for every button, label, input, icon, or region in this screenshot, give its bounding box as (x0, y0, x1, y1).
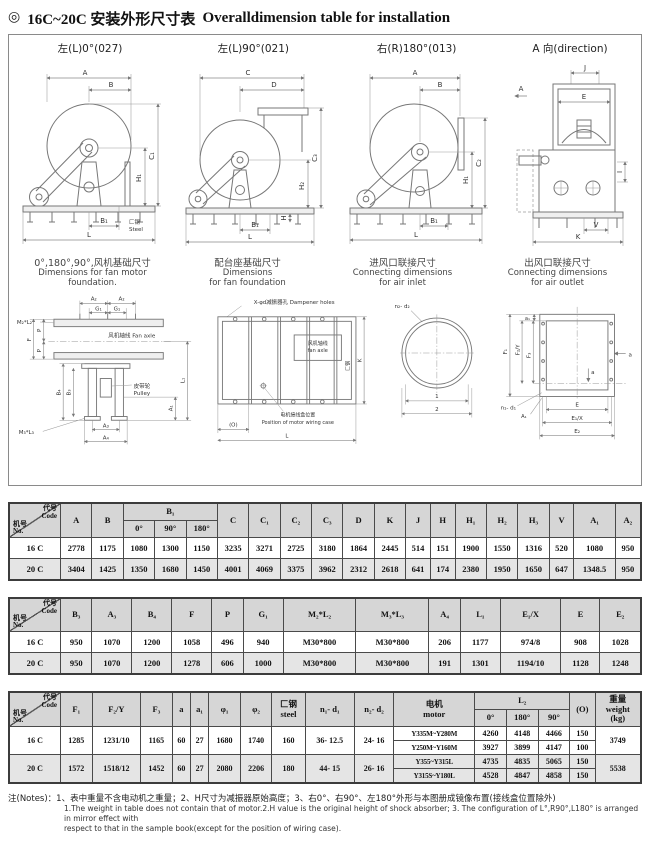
col-header: 180° (506, 710, 538, 727)
dim-label: H (280, 215, 288, 220)
table-cell: 1650 (518, 559, 549, 581)
dim-label: D (272, 81, 277, 89)
table-cell: 150 (570, 769, 595, 784)
col-header: A₃ (92, 598, 132, 632)
col-header: G₁ (243, 598, 283, 632)
table-cell: 5065 (538, 755, 570, 769)
fan-drawing-90deg: C D C₃ (178, 56, 328, 251)
col-header: J (406, 503, 431, 538)
row-header: 20 C (9, 653, 61, 675)
table-cell: 3962 (312, 559, 343, 581)
dim-label: F₂/Y (515, 343, 521, 354)
table-row: 16 C277811751080130011503235327127253180… (9, 538, 641, 559)
col-header: 180° (186, 521, 217, 538)
table-cell: 2445 (374, 538, 405, 559)
table-cell: Y355~Y315L (394, 755, 475, 769)
table-cell: 1028 (600, 632, 641, 653)
air-inlet-drawing: n₂- d₂ 1 2 (378, 295, 493, 435)
table-cell: 60 (172, 755, 190, 784)
table-cell: M30*800 (283, 653, 356, 675)
col-header: 90° (155, 521, 186, 538)
dim-label: L (87, 231, 91, 239)
pulley-label-zh: 皮带轮 (134, 381, 151, 389)
fan-drawing-0deg: A B C₁ (15, 56, 165, 251)
dim-label: F (27, 338, 33, 341)
bolt-holes-label: n₁- d₁ (501, 405, 516, 411)
table-cell: 1452 (141, 755, 173, 784)
caption-fan-motor-foundation: 0°,180°,90°,风机基础尺寸 Dimensions for fan mo… (15, 255, 170, 289)
col-header: L₁ (460, 598, 500, 632)
steel-label: 匚钢 (345, 360, 352, 370)
dim-label: A (83, 69, 88, 77)
col-header: H₃ (518, 503, 549, 538)
col-header: D (343, 503, 374, 538)
table-cell: 4466 (538, 727, 570, 741)
col-header: P (212, 598, 243, 632)
drawings-panel: 左(L)0°(027) A B (8, 34, 642, 486)
col-header: A₁ (574, 503, 615, 538)
table-cell: 1200 (132, 632, 172, 653)
caption-zh: 配台座基础尺寸 (170, 255, 325, 269)
dim-label: B (109, 81, 114, 89)
view-arrow-label: A (519, 85, 524, 93)
table-cell: 2380 (455, 559, 486, 581)
table-cell: 1058 (172, 632, 212, 653)
dim-label: J (583, 64, 586, 72)
axle-label-en: fan axle (308, 348, 328, 354)
dim-label: C₁ (148, 152, 156, 160)
notes: 注(Notes)：1、表中重量不含电动机之重量；2、H尺寸为减振器原始高度；3、… (8, 792, 642, 833)
col-header: C₁ (249, 503, 280, 538)
table-cell: 2312 (343, 559, 374, 581)
table-cell: 1316 (518, 538, 549, 559)
table-cell: 1680 (155, 559, 186, 581)
table-cell: 908 (561, 632, 600, 653)
dimension-table-flange-motor: 代号 Code机号 No.F₁F₂/YF₃aa₁φ₁φ₂匚钢 steeln₁- … (8, 691, 642, 784)
dim-label: E (582, 93, 586, 101)
table-cell: 150 (570, 755, 595, 769)
dim-label: A₄ (103, 435, 110, 441)
caption-en: Dimensions for fan motor foundation. (15, 269, 170, 289)
table-cell: 180 (272, 755, 305, 784)
dim-label: B₁ (100, 217, 108, 225)
corner-code-label: 代号 Code (41, 694, 57, 709)
table-cell: 1175 (92, 538, 123, 559)
caption-zh: 出风口联接尺寸 (480, 255, 635, 269)
caption-air-outlet: 出风口联接尺寸 Connecting dimensions for air ou… (480, 255, 635, 289)
col-header: F₃ (141, 692, 173, 727)
dim-label: H₁ (135, 174, 143, 182)
col-header: (O) (570, 692, 595, 727)
pulley-label-en: Pulley (134, 391, 151, 397)
table-cell: Y335M~Y280M (394, 727, 475, 741)
table-cell: 3749 (595, 727, 641, 755)
col-header: F₂/Y (92, 692, 141, 727)
table-cell: 1950 (486, 559, 517, 581)
dim-label: C₂ (475, 159, 483, 167)
table-cell: 2206 (240, 755, 272, 784)
dim-label: K (576, 233, 581, 241)
col-header: E (561, 598, 600, 632)
table-cell: Y315S~Y180L (394, 769, 475, 784)
document-page: ◎ 16C~20C 安装外形尺寸表 Overalldimension table… (0, 0, 650, 854)
table-cell: 4835 (506, 755, 538, 769)
dim-label: A₁ (169, 405, 175, 411)
table-cell: 1231/10 (92, 727, 141, 755)
table-cell: 950 (61, 632, 92, 653)
table-cell: 100 (570, 741, 595, 755)
dim-label: B₄ (56, 388, 62, 395)
table-cell: 1348.5 (574, 559, 615, 581)
table-cell: 4735 (475, 755, 507, 769)
table-cell: 1900 (455, 538, 486, 559)
table-cell: 1070 (92, 632, 132, 653)
caption-row: 0°,180°,90°,风机基础尺寸 Dimensions for fan mo… (15, 255, 635, 289)
table-cell: 950 (615, 559, 641, 581)
table-cell: 1740 (240, 727, 272, 755)
table-cell: 606 (212, 653, 243, 675)
foundation-side-drawing: A₂ A₂ G₁ G₁ M₂*L₂ 风机轴线 Fan axle F P P (15, 295, 205, 463)
row-header: 20 C (9, 755, 61, 784)
corner-no-label: 机号 No. (13, 710, 27, 725)
notes-en-line2: respect to that in the sample book(excep… (64, 824, 642, 834)
page-title-en: Overalldimension table for installation (202, 10, 450, 27)
dim-label: B₁ (252, 221, 260, 229)
table-cell: 44- 15 (305, 755, 354, 784)
figure-title: A 向(direction) (505, 41, 635, 56)
table-cell: 514 (406, 538, 431, 559)
dim-label: 1 (435, 394, 439, 400)
table-cell: 647 (549, 559, 574, 581)
dim-label: V (594, 221, 599, 229)
table-cell: 1350 (123, 559, 154, 581)
dim-label: P (37, 348, 43, 352)
table-cell: 950 (61, 653, 92, 675)
table-cell: M30*800 (356, 653, 429, 675)
table-cell: 27 (190, 755, 208, 784)
col-header: E₁/X (500, 598, 561, 632)
row-header: 16 C (9, 632, 61, 653)
table-cell: 1572 (61, 755, 93, 784)
fan-views-row: 左(L)0°(027) A B (15, 39, 635, 251)
caption-en: Dimensions for fan foundation (170, 269, 325, 289)
col-header: B₃ (61, 598, 92, 632)
dim-label: F₃ (526, 352, 532, 357)
dampener-holes-label: X-φd减振器孔 Dampener holes (254, 298, 335, 306)
col-header: n₁- d₁ (305, 692, 354, 727)
dim-label: K (358, 358, 364, 362)
table-cell: 641 (406, 559, 431, 581)
row-header: 20 C (9, 559, 61, 581)
dim-label: L (248, 233, 252, 241)
table-cell: 4847 (506, 769, 538, 784)
col-header: 匚钢 steel (272, 692, 305, 727)
fan-view-right-180deg: 右(R)180°(013) A B (342, 39, 492, 251)
table-cell: 1550 (486, 538, 517, 559)
table-cell: 1080 (123, 538, 154, 559)
dim-label: B₃ (67, 389, 73, 395)
table-cell: 1864 (343, 538, 374, 559)
notes-en: 1.The weight in table does not contain t… (64, 804, 642, 833)
col-header: n₂- d₂ (354, 692, 393, 727)
dim-label: A₁ (521, 413, 527, 419)
table-cell: 1680 (209, 727, 241, 755)
col-header: B₁ (123, 503, 217, 521)
col-header: L₂ (475, 692, 570, 710)
dim-label: H₂ (298, 182, 306, 190)
dimension-table-foundation: 代号 Code机号 No.B₃A₃B₄FPG₁M₂*L₂M₃*L₃A₄L₁E₁/… (8, 597, 642, 675)
table-cell: 4147 (538, 741, 570, 755)
col-header: C (217, 503, 248, 538)
page-title-zh: 16C~20C 安装外形尺寸表 (27, 8, 195, 29)
dim-label: (O) (229, 422, 238, 428)
dim-label: G₁ (114, 306, 121, 312)
title-bullet-icon: ◎ (8, 11, 20, 25)
dim-label: A₂ (119, 296, 125, 302)
dim-label: A₃ (103, 423, 109, 429)
table-cell: 1000 (243, 653, 283, 675)
steel-label: 匚钢 (129, 218, 141, 226)
col-header: A₄ (429, 598, 460, 632)
col-header: H (430, 503, 455, 538)
table-cell: 191 (429, 653, 460, 675)
col-header: B (92, 503, 123, 538)
table-cell: 950 (615, 538, 641, 559)
dim-label: a (591, 370, 594, 376)
corner-header: 代号 Code机号 No. (9, 692, 61, 727)
table-cell: 174 (430, 559, 455, 581)
table-cell: 520 (549, 538, 574, 559)
table-cell: 1177 (460, 632, 500, 653)
wiring-label-en: Position of motor wiring case (262, 419, 334, 425)
page-title: ◎ 16C~20C 安装外形尺寸表 Overalldimension table… (8, 5, 642, 31)
col-header: H₁ (455, 503, 486, 538)
table-cell: M30*800 (356, 632, 429, 653)
dim-label: B₁ (430, 217, 438, 225)
table-row: 20 C9501070120012786061000M30*800M30*800… (9, 653, 641, 675)
table-cell: 4858 (538, 769, 570, 784)
dim-label: C (246, 69, 251, 77)
caption-air-inlet: 进风口联接尺寸 Connecting dimensions for air in… (325, 255, 480, 289)
table-cell: 24- 16 (354, 727, 393, 755)
bolt-holes-label: n₂- d₂ (394, 303, 409, 309)
table-cell: 27 (190, 727, 208, 755)
corner-code-label: 代号 Code (41, 505, 57, 520)
caption-zh: 进风口联接尺寸 (325, 255, 480, 269)
axle-label: 风机轴线 Fan axle (108, 331, 156, 339)
dim-label: H₁ (462, 176, 470, 184)
table-cell: 4528 (475, 769, 507, 784)
col-header: M₃*L₃ (356, 598, 429, 632)
table-cell: 2778 (61, 538, 92, 559)
col-header: V (549, 503, 574, 538)
dim-label: A (412, 69, 417, 77)
dim-label: L (414, 231, 418, 239)
caption-fan-foundation: 配台座基础尺寸 Dimensions for fan foundation (170, 255, 325, 289)
corner-no-label: 机号 No. (13, 521, 27, 536)
dim-label: G₁ (95, 306, 102, 312)
wiring-label-zh: 电机接线盒位置 (281, 411, 316, 418)
corner-no-label: 机号 No. (13, 615, 27, 630)
col-header: C₃ (312, 503, 343, 538)
table-cell: 974/8 (500, 632, 561, 653)
table-cell: 1128 (561, 653, 600, 675)
dim-label: L (286, 433, 289, 439)
table-cell: M30*800 (283, 632, 356, 653)
table-cell: 60 (172, 727, 190, 755)
fan-view-left-90deg: 左(L)90°(021) C D (178, 39, 328, 251)
dim-label: A₂ (91, 296, 97, 302)
dimension-table-main: 代号 Code机号 No.ABB₁CC₁C₂C₃DKJHH₁H₂H₃VA₁A₂0… (8, 502, 642, 581)
col-header: a (172, 692, 190, 727)
col-header: 0° (475, 710, 507, 727)
table-row: 16 C12851231/10116560271680174016036- 12… (9, 727, 641, 741)
bolt-label: M₃*L₃ (19, 430, 34, 436)
row-header: 16 C (9, 538, 61, 559)
table-cell: Y250M~Y160M (394, 741, 475, 755)
table-cell: 1518/12 (92, 755, 141, 784)
corner-header: 代号 Code机号 No. (9, 503, 61, 538)
table-cell: 1150 (186, 538, 217, 559)
table-cell: 151 (430, 538, 455, 559)
dim-label: P (37, 328, 43, 332)
dim-label: L₁ (181, 377, 187, 382)
table-cell: 1070 (92, 653, 132, 675)
col-header: K (374, 503, 405, 538)
dim-label: E₁/X (571, 415, 583, 421)
table-row: 16 C950107012001058496940M30*800M30*8002… (9, 632, 641, 653)
dim-label: 2 (435, 407, 439, 413)
col-header: M₂*L₂ (283, 598, 356, 632)
table-cell: 1278 (172, 653, 212, 675)
col-header: F (172, 598, 212, 632)
col-header: H₂ (486, 503, 517, 538)
dim-label: C₃ (311, 154, 319, 162)
col-header: 0° (123, 521, 154, 538)
dim-label: E₂ (574, 428, 580, 434)
row-header: 16 C (9, 727, 61, 755)
table-cell: 3927 (475, 741, 507, 755)
dim-label: F₁ (503, 348, 509, 353)
steel-label-en: Steel (129, 227, 143, 233)
table-cell: 1200 (132, 653, 172, 675)
table-cell: 1300 (155, 538, 186, 559)
table-cell: 940 (243, 632, 283, 653)
table-cell: 5538 (595, 755, 641, 784)
caption-en: Connecting dimensions for air inlet (325, 269, 480, 289)
col-header: F₁ (61, 692, 93, 727)
fan-drawing-180deg: A B C₂ (342, 56, 492, 251)
table-cell: 1080 (574, 538, 615, 559)
col-header: E₂ (600, 598, 641, 632)
col-header: 电机 motor (394, 692, 475, 727)
table-cell: 1165 (141, 727, 173, 755)
table-cell: 3271 (249, 538, 280, 559)
table-cell: 1194/10 (500, 653, 561, 675)
col-header: φ₂ (240, 692, 272, 727)
table-cell: 4148 (506, 727, 538, 741)
notes-en-line1: 1.The weight in table does not contain t… (64, 804, 642, 824)
table-cell: 2080 (209, 755, 241, 784)
col-header: 90° (538, 710, 570, 727)
table-cell: 1301 (460, 653, 500, 675)
fan-view-left-0deg: 左(L)0°(027) A B (15, 39, 165, 251)
col-header: A (61, 503, 92, 538)
table-cell: 4260 (475, 727, 507, 741)
table-cell: 3180 (312, 538, 343, 559)
notes-zh: 注(Notes)：1、表中重量不含电动机之重量；2、H尺寸为减振器原始高度；3、… (8, 792, 642, 804)
corner-header: 代号 Code机号 No. (9, 598, 61, 632)
axle-label-zh: 风机轴线 (308, 339, 328, 346)
table-cell: 3404 (61, 559, 92, 581)
table-cell: 2618 (374, 559, 405, 581)
corner-code-label: 代号 Code (41, 600, 57, 615)
table-row: 20 C340414251350168014504001406933753962… (9, 559, 641, 581)
col-header: B₄ (132, 598, 172, 632)
table-cell: 1285 (61, 727, 93, 755)
table-cell: 2725 (280, 538, 311, 559)
figure-title: 右(R)180°(013) (342, 41, 492, 56)
table-cell: 496 (212, 632, 243, 653)
table-cell: 4001 (217, 559, 248, 581)
dim-label: I (616, 171, 624, 173)
caption-zh: 0°,180°,90°,风机基础尺寸 (15, 255, 170, 269)
fan-drawing-a-view: J A E I (505, 56, 635, 251)
table-cell: 160 (272, 727, 305, 755)
table-cell: 3375 (280, 559, 311, 581)
table-cell: 206 (429, 632, 460, 653)
col-header: a₁ (190, 692, 208, 727)
table-cell: 1450 (186, 559, 217, 581)
table-cell: 4069 (249, 559, 280, 581)
col-header: A₂ (615, 503, 641, 538)
fan-view-a-direction: A 向(direction) J A E (505, 39, 635, 251)
dim-label: B (437, 81, 442, 89)
table-cell: 1248 (600, 653, 641, 675)
table-row: 20 C15721518/12145260272080220618044- 15… (9, 755, 641, 769)
table-cell: 150 (570, 727, 595, 741)
col-header: 重量 weight (kg) (595, 692, 641, 727)
foundation-views-row: A₂ A₂ G₁ G₁ M₂*L₂ 风机轴线 Fan axle F P P (15, 295, 635, 463)
table-cell: 3235 (217, 538, 248, 559)
foundation-plan-drawing: X-φd减振器孔 Dampener holes 风机轴线 fan axle 电机… (207, 295, 375, 463)
figure-title: 左(L)90°(021) (178, 41, 328, 56)
col-header: φ₁ (209, 692, 241, 727)
dim-label: a (628, 352, 631, 358)
col-header: C₂ (280, 503, 311, 538)
bolt-label: M₂*L₂ (17, 319, 32, 325)
figure-title: 左(L)0°(027) (15, 41, 165, 56)
table-cell: 36- 12.5 (305, 727, 354, 755)
dim-label: E (575, 402, 579, 408)
air-outlet-drawing: a₁ F₁ F₂/Y F₃ a a n₁- d₁ A₁ E (495, 295, 635, 455)
table-cell: 26- 16 (354, 755, 393, 784)
table-cell: 3899 (506, 741, 538, 755)
table-cell: 1425 (92, 559, 123, 581)
caption-en: Connecting dimensions for air outlet (480, 269, 635, 289)
